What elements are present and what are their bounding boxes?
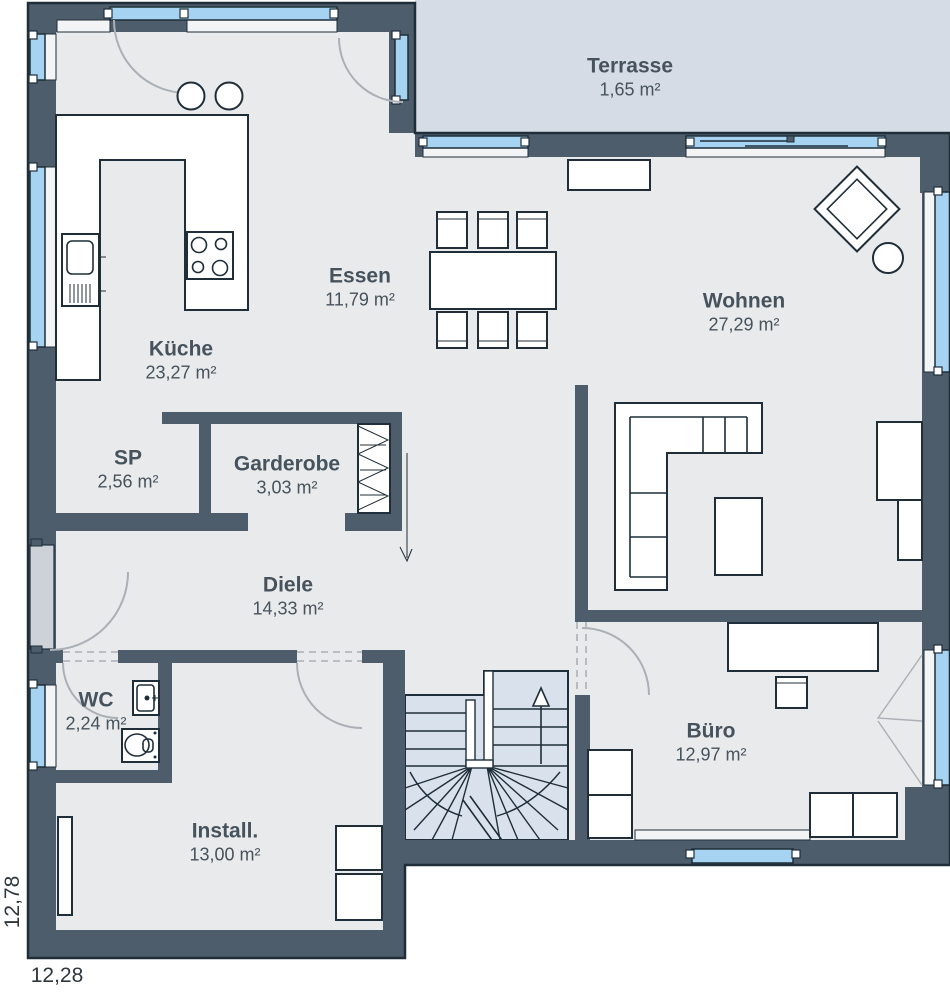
cabinet — [810, 793, 853, 837]
window-left-1 — [30, 34, 45, 80]
wardrobe — [358, 424, 390, 513]
window-buero — [935, 650, 950, 785]
dining-table — [430, 252, 556, 309]
sideboard — [568, 160, 650, 190]
utility-unit — [336, 826, 382, 870]
floor-plan-svg — [0, 0, 950, 993]
cabinet — [853, 793, 897, 837]
dimension-width: 12,28 — [31, 964, 84, 988]
dimension-height: 12,78 — [1, 876, 25, 929]
window-wc — [30, 685, 45, 767]
floor-plan: Terrasse 1,65 m² Küche 23,27 m² Essen 11… — [0, 0, 950, 993]
glass-door-terrace — [395, 35, 408, 100]
window-kitchen — [30, 167, 45, 347]
bar-stool — [216, 83, 243, 110]
stair-rail — [466, 760, 493, 768]
staircase — [405, 671, 568, 847]
side-table — [873, 243, 903, 273]
desk-chair — [776, 677, 807, 708]
stair-rail — [484, 671, 493, 766]
stair-rail — [466, 700, 475, 766]
window-living-left — [423, 136, 528, 148]
toilet — [122, 729, 159, 762]
terrace-area — [415, 0, 950, 133]
utility-shelf — [58, 817, 72, 915]
window-living-right — [935, 192, 950, 372]
utility-unit — [336, 874, 382, 920]
window-top — [110, 7, 337, 20]
bar-stool — [178, 83, 205, 110]
coffee-table — [715, 498, 762, 575]
window-bottom — [692, 849, 793, 863]
desk — [728, 623, 878, 671]
cooktop — [187, 232, 233, 279]
cabinet — [588, 795, 632, 838]
wc-sink — [133, 681, 159, 715]
cabinet — [588, 750, 632, 795]
kitchen-sink — [62, 234, 106, 306]
entrance-door — [30, 539, 54, 653]
